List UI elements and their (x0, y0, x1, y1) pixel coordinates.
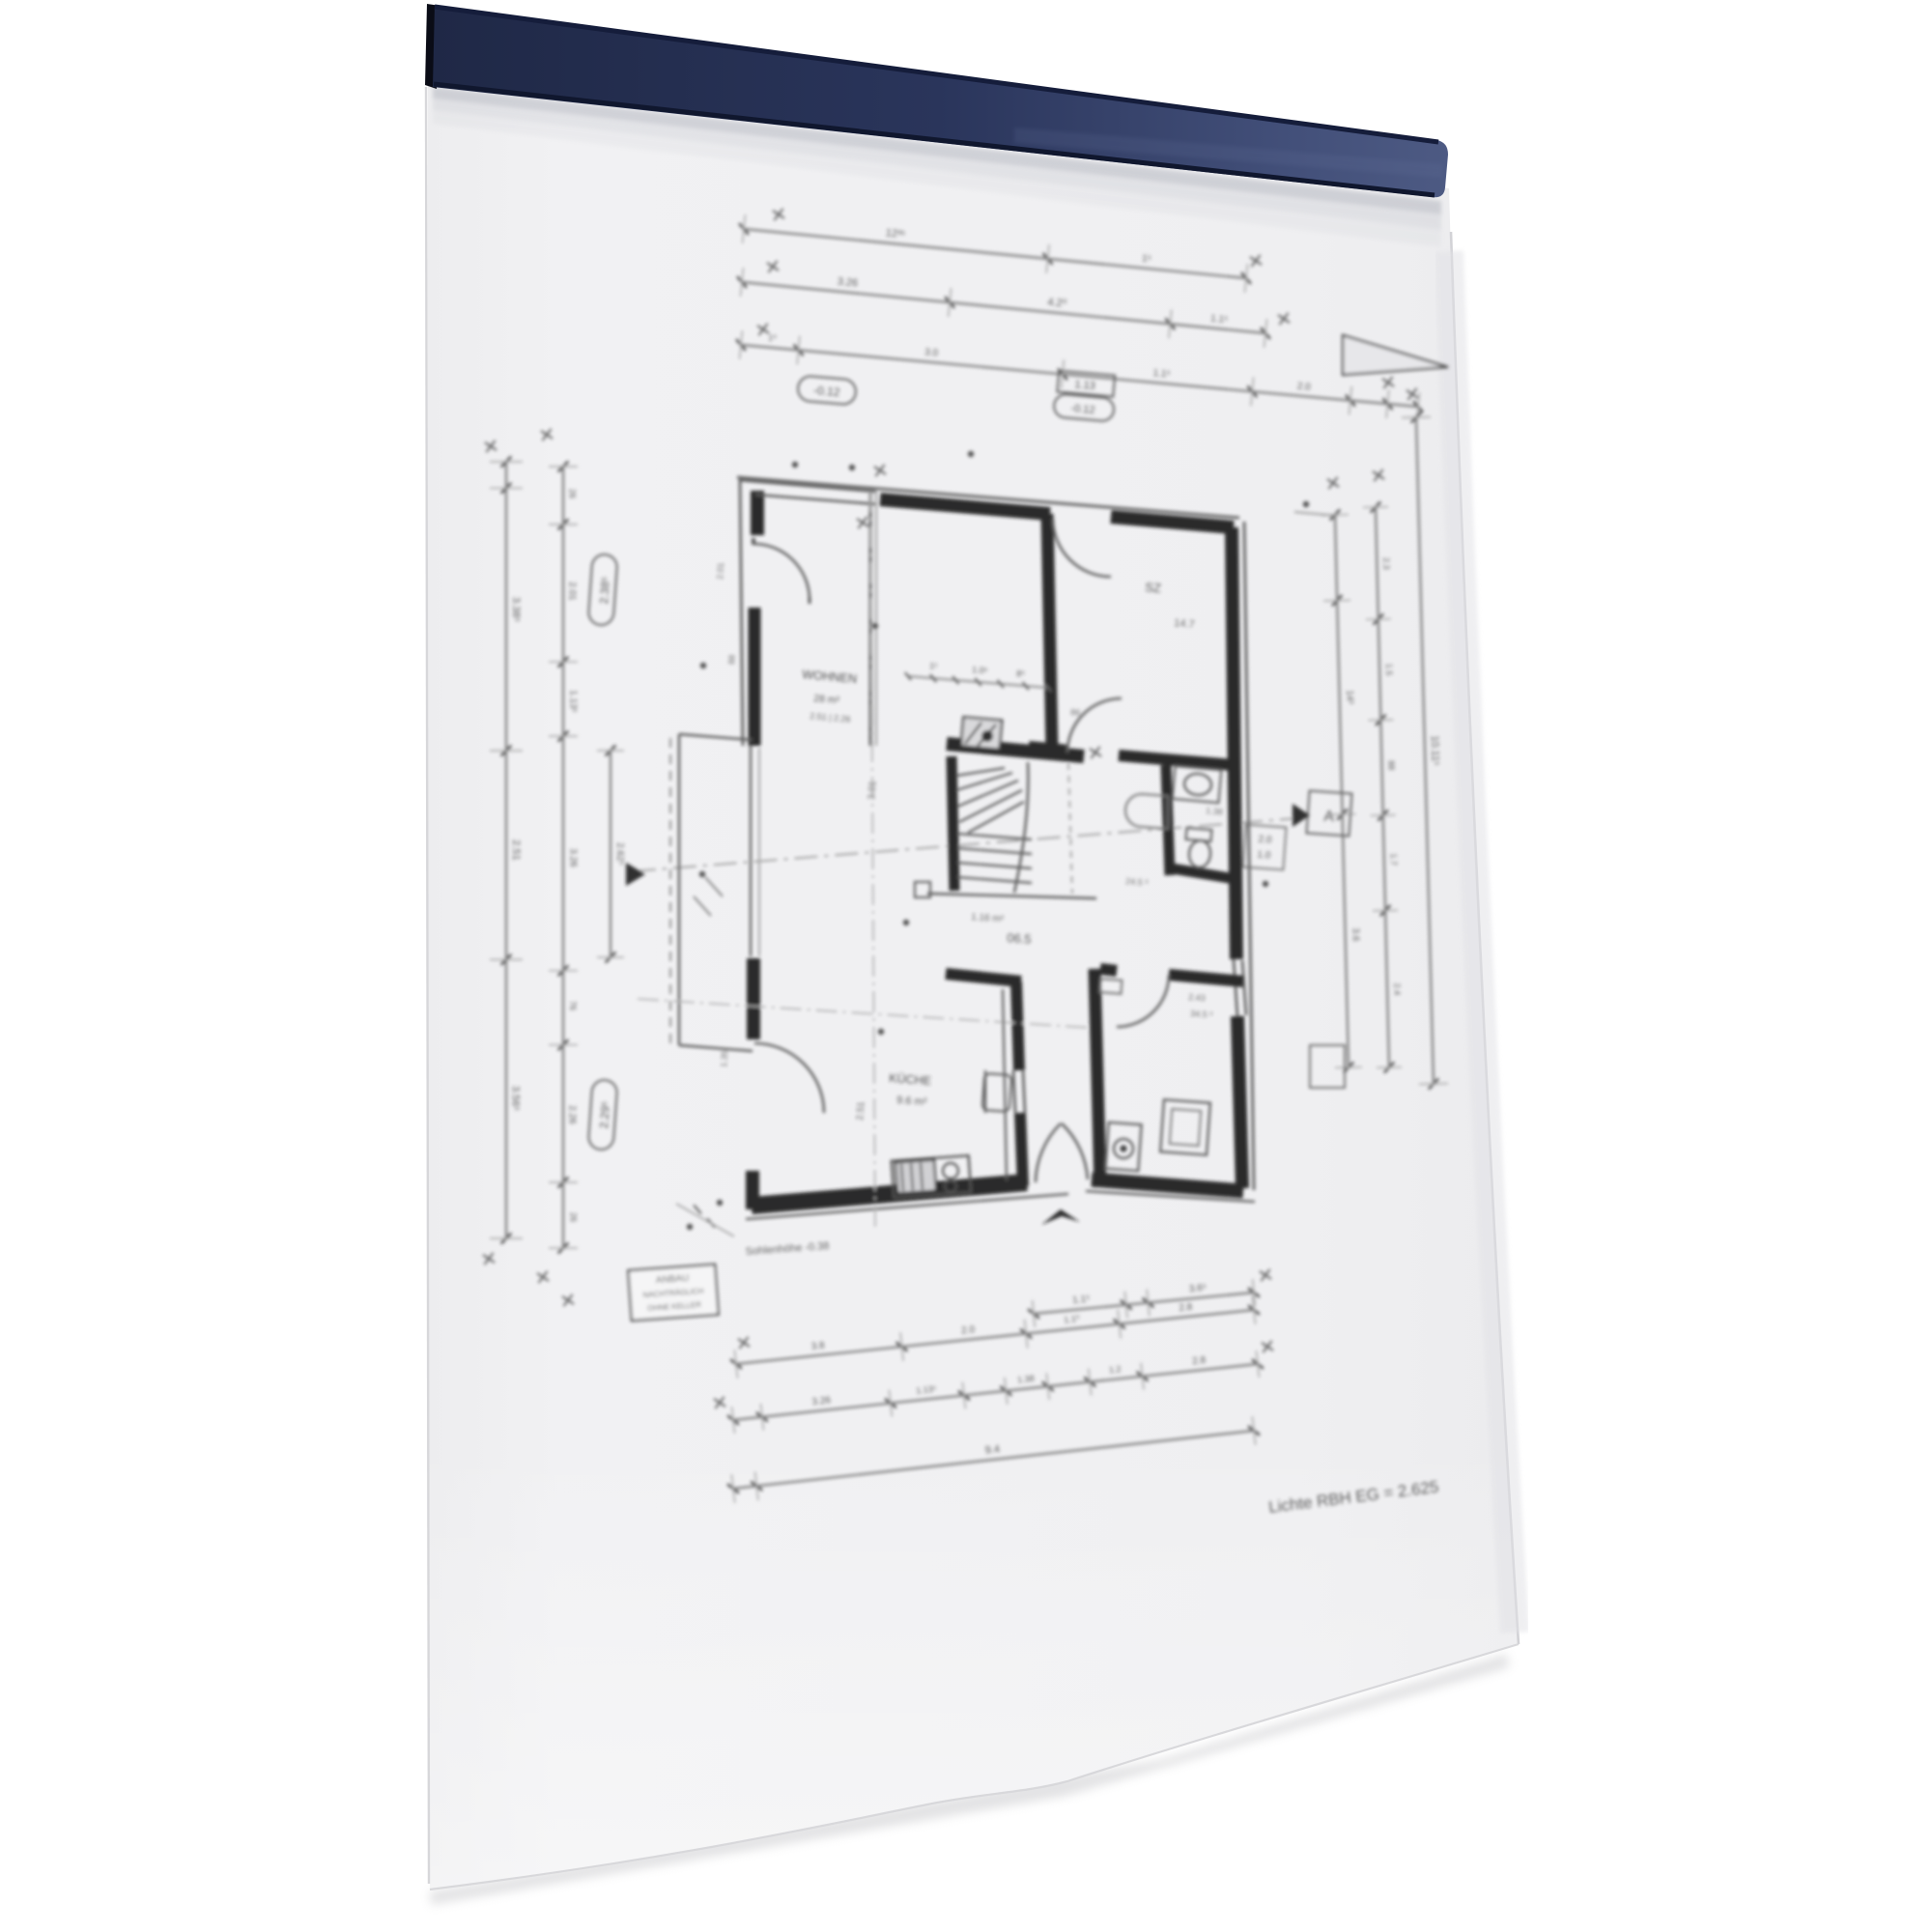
svg-text:1.7: 1.7 (1389, 853, 1399, 866)
svg-text:26: 26 (568, 489, 578, 498)
svg-text:A: A (1323, 809, 1335, 826)
svg-text:1.1⁰: 1.1⁰ (1064, 1314, 1080, 1325)
svg-text:2.26: 2.26 (567, 1105, 578, 1124)
svg-text:24.5 ³: 24.5 ³ (1125, 876, 1149, 888)
svg-text:2.4: 2.4 (1392, 983, 1402, 996)
svg-text:3.6⁵: 3.6⁵ (1189, 1283, 1207, 1295)
svg-text:1.35: 1.35 (719, 1050, 729, 1067)
svg-text:28 m²: 28 m² (813, 693, 840, 706)
svg-text:14³: 14³ (1344, 690, 1354, 704)
svg-text:2.3: 2.3 (1381, 557, 1391, 570)
svg-text:2.01: 2.01 (715, 562, 725, 580)
svg-text:9.6 m²: 9.6 m² (896, 1094, 927, 1108)
svg-text:2.8: 2.8 (1179, 1302, 1193, 1314)
svg-text:-0.12: -0.12 (813, 384, 841, 399)
svg-text:1.38: 1.38 (1017, 1374, 1035, 1385)
svg-text:1.2: 1.2 (1108, 1364, 1122, 1375)
svg-text:2.0: 2.0 (1258, 835, 1272, 846)
svg-text:76: 76 (568, 1001, 578, 1010)
svg-text:88: 88 (1386, 760, 1396, 770)
svg-text:2.43: 2.43 (1188, 992, 1206, 1003)
svg-text:3.6: 3.6 (1350, 927, 1360, 942)
svg-text:1.1⁵: 1.1⁵ (1210, 313, 1229, 326)
svg-text:3.56⁵: 3.56⁵ (510, 1086, 522, 1111)
svg-text:1⁵: 1⁵ (1142, 253, 1152, 265)
svg-text:14.7: 14.7 (1174, 617, 1195, 631)
svg-text:-0.12: -0.12 (1070, 403, 1095, 416)
svg-text:1.5: 1.5 (1384, 664, 1394, 676)
svg-text:1.13⁵: 1.13⁵ (567, 690, 578, 713)
svg-text:1⁰: 1⁰ (768, 333, 778, 344)
svg-text:2.62⁵: 2.62⁵ (614, 842, 625, 866)
svg-text:9.4: 9.4 (984, 1443, 1001, 1457)
svg-text:2.29⁵: 2.29⁵ (597, 1101, 612, 1129)
svg-text:3.0: 3.0 (924, 347, 939, 358)
svg-text:1.13: 1.13 (1074, 379, 1095, 392)
svg-text:12³⁵: 12³⁵ (885, 227, 906, 241)
svg-text:2.0: 2.0 (1296, 382, 1311, 393)
svg-text:1¹: 1¹ (929, 661, 938, 671)
svg-text:2.01: 2.01 (567, 582, 578, 601)
svg-text:2.51: 2.51 (855, 1101, 867, 1122)
svg-text:10.11⁵: 10.11⁵ (1429, 735, 1441, 766)
svg-text:1.0: 1.0 (1257, 850, 1271, 862)
svg-text:26: 26 (568, 1212, 578, 1222)
svg-text:1.38: 1.38 (1206, 806, 1223, 816)
svg-text:3.01: 3.01 (867, 781, 878, 801)
svg-text:2.51: 2.51 (510, 839, 522, 860)
svg-text:3.26: 3.26 (811, 1395, 832, 1407)
svg-text:34.5 ³: 34.5 ³ (1190, 1009, 1213, 1020)
svg-text:3.26: 3.26 (568, 848, 579, 867)
svg-text:1.1⁵: 1.1⁵ (1152, 368, 1171, 381)
svg-text:88: 88 (726, 654, 737, 665)
svg-text:06.5: 06.5 (1007, 930, 1032, 947)
svg-text:3.38⁵: 3.38⁵ (510, 597, 522, 622)
svg-text:SZ: SZ (1145, 580, 1162, 595)
svg-text:2.38⁵: 2.38⁵ (597, 577, 612, 605)
svg-text:3.8: 3.8 (810, 1340, 825, 1351)
svg-text:8⁵: 8⁵ (1016, 668, 1026, 679)
svg-text:86: 86 (1070, 707, 1081, 718)
svg-text:1.1⁵: 1.1⁵ (1072, 1293, 1091, 1306)
svg-text:1.0⁵: 1.0⁵ (972, 665, 988, 675)
svg-text:2.8: 2.8 (1192, 1355, 1207, 1367)
svg-text:3.26: 3.26 (837, 276, 858, 290)
svg-text:2.0: 2.0 (961, 1324, 976, 1336)
svg-text:4.2⁰: 4.2⁰ (1047, 297, 1067, 310)
